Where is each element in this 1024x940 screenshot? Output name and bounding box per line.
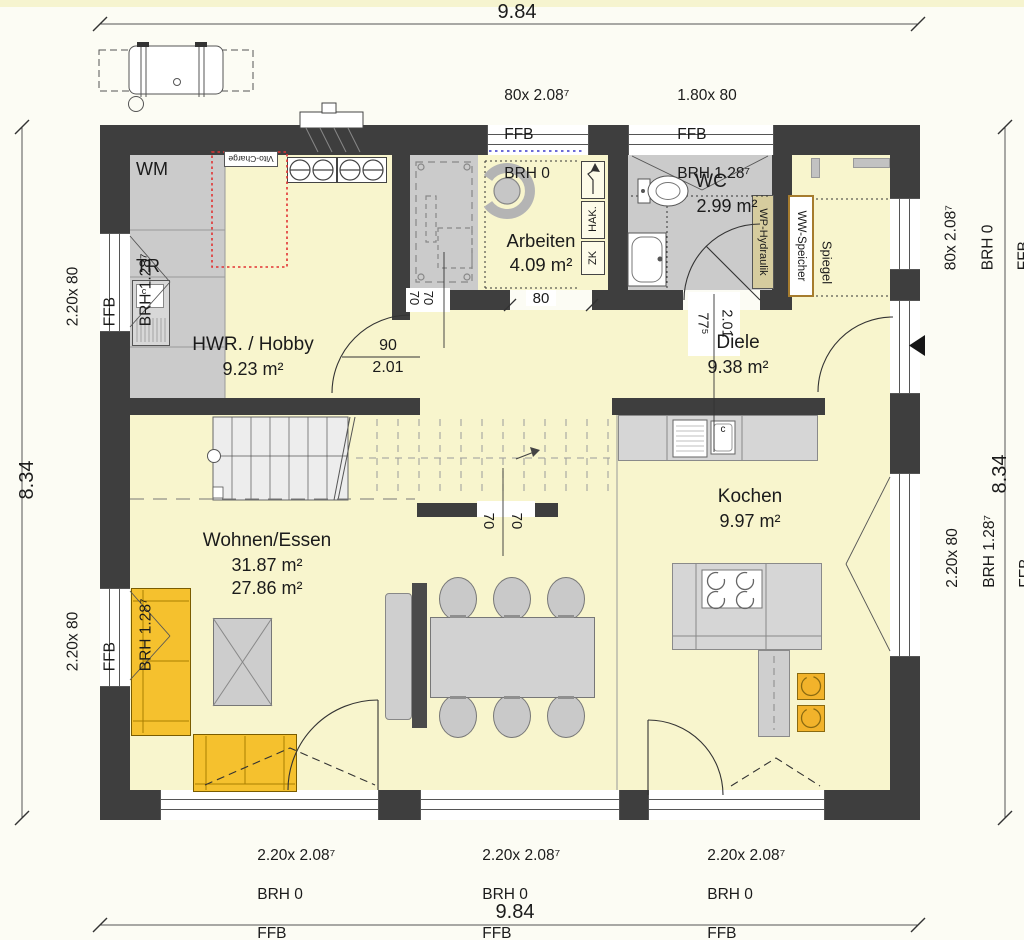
hwr-door-width: 90	[358, 337, 418, 354]
label-hak: HAK.	[587, 201, 599, 237]
label-wp-hydraulik: WP-Hydraulik	[757, 198, 769, 286]
arbeiten-door-width: 80	[526, 290, 556, 306]
label-top-door: 80x 2.08⁷ FFB BRH 0	[487, 66, 569, 204]
label-kitchen-appliance: c	[716, 424, 730, 434]
dim-right: 8.34	[989, 446, 1011, 502]
label-bottom-left: 2.20x 2.08⁷ BRH 0 FFB	[240, 826, 335, 940]
room-label-diele: Diele 9.38 m²	[638, 332, 838, 378]
label-spiegel: Spiegel	[821, 233, 834, 293]
label-bottom-right: 2.20x 2.08⁷ BRH 0 FFB	[690, 826, 785, 940]
electric-supply-icon	[588, 163, 600, 194]
room-label-wc-area: 2.99 m²	[667, 196, 787, 217]
room-label-wohnen: Wohnen/Essen 31.87 m² 27.86 m²	[167, 530, 367, 599]
dim-top: 9.84	[477, 1, 557, 23]
floor-plan: 9.84 9.84 8.34 8.34 80x 2.08⁷ FFB BRH 0 …	[0, 0, 1024, 940]
label-vito-charge: Vito-Charge	[224, 151, 278, 167]
meter-dials	[290, 160, 383, 180]
vito-charge-zone	[212, 152, 287, 267]
label-hwr-appliance: c	[138, 286, 150, 296]
room-label-kochen: Kochen 9.97 m²	[650, 486, 850, 532]
label-right-bottom-window: 2.20x 80 BRH 1.28⁷ FFB	[926, 509, 980, 605]
label-left-bottom-window: 2.20x 80 FFB BRH 1.28⁷	[47, 594, 101, 689]
label-tr: TR	[136, 256, 160, 277]
label-zk: ZK	[587, 243, 599, 273]
arbeiten-wall-dim-a: 70	[408, 285, 422, 311]
stair-wall-dim-b: 70	[509, 506, 525, 536]
stair-wall-dim-a: 70	[481, 506, 497, 536]
wc-door-width: 77⁵	[696, 304, 711, 344]
arbeiten-wall-dim-b: 70	[422, 285, 436, 311]
entrance-arrow-icon	[909, 335, 925, 356]
room-label-hwr: HWR. / Hobby 9.23 m²	[153, 334, 353, 380]
label-ww-speicher: WW-Speicher	[795, 200, 807, 292]
label-right-top-window: 80x 2.08⁷ BRH 0 FFB	[925, 193, 979, 288]
wc-door-height: 2.01	[720, 304, 735, 344]
hwr-door-height: 2.01	[358, 359, 418, 376]
label-bottom-center: 2.20x 2.08⁷ BRH 0 FFB	[465, 826, 560, 940]
chimney	[300, 103, 363, 152]
label-wm: WM	[136, 159, 168, 180]
exterior-canopy	[99, 42, 253, 112]
label-left-top-window: 2.20x 80 FFB BRH 1.28⁷	[47, 249, 101, 344]
staircase	[130, 417, 612, 500]
room-label-wc: WC	[661, 171, 761, 193]
living-details	[133, 590, 574, 790]
dim-left: 8.34	[16, 452, 38, 508]
